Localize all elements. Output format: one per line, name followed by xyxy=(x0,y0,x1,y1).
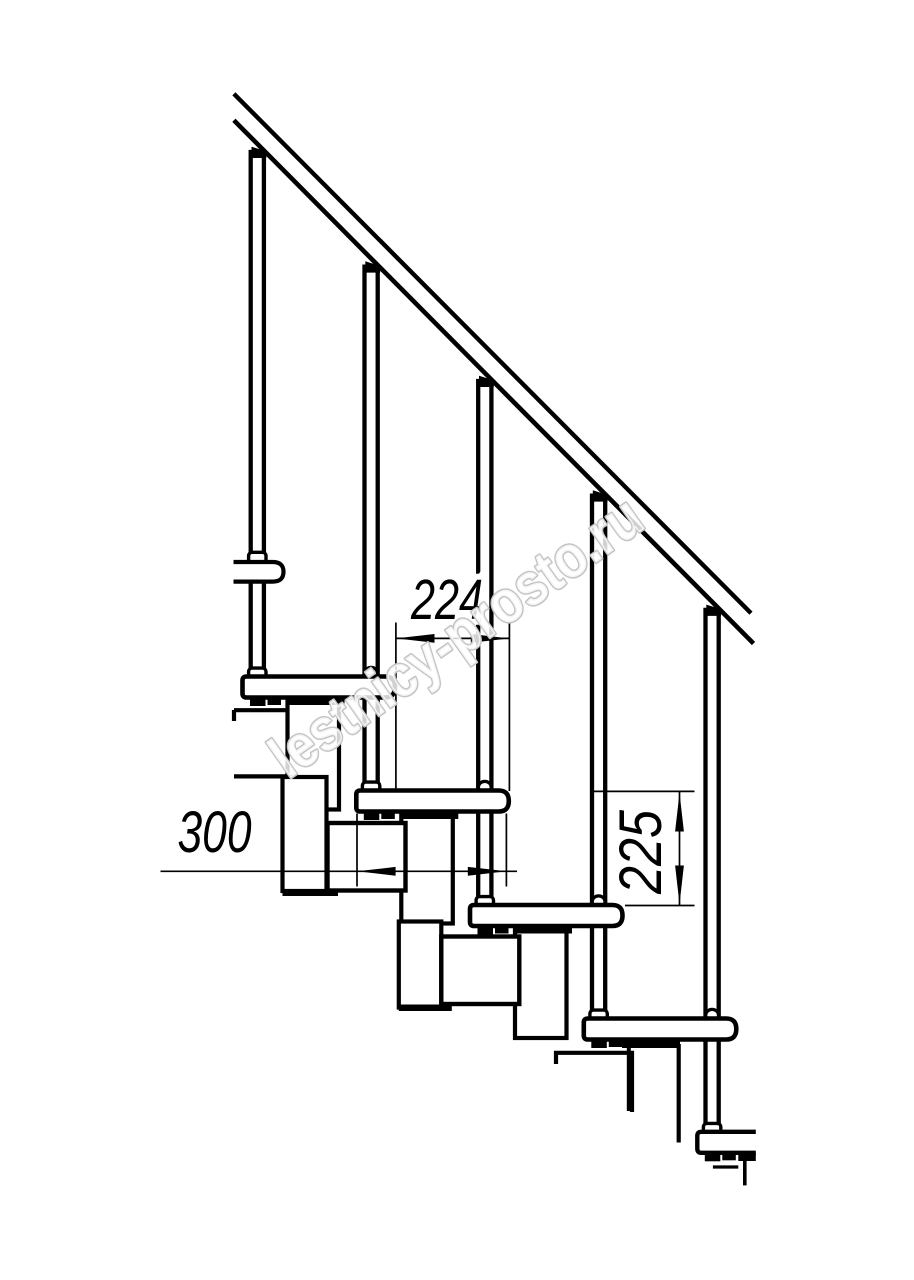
svg-text:300: 300 xyxy=(178,800,252,865)
svg-text:225: 225 xyxy=(607,809,674,894)
svg-text:lestnicy-prosto.ru: lestnicy-prosto.ru xyxy=(257,482,655,790)
